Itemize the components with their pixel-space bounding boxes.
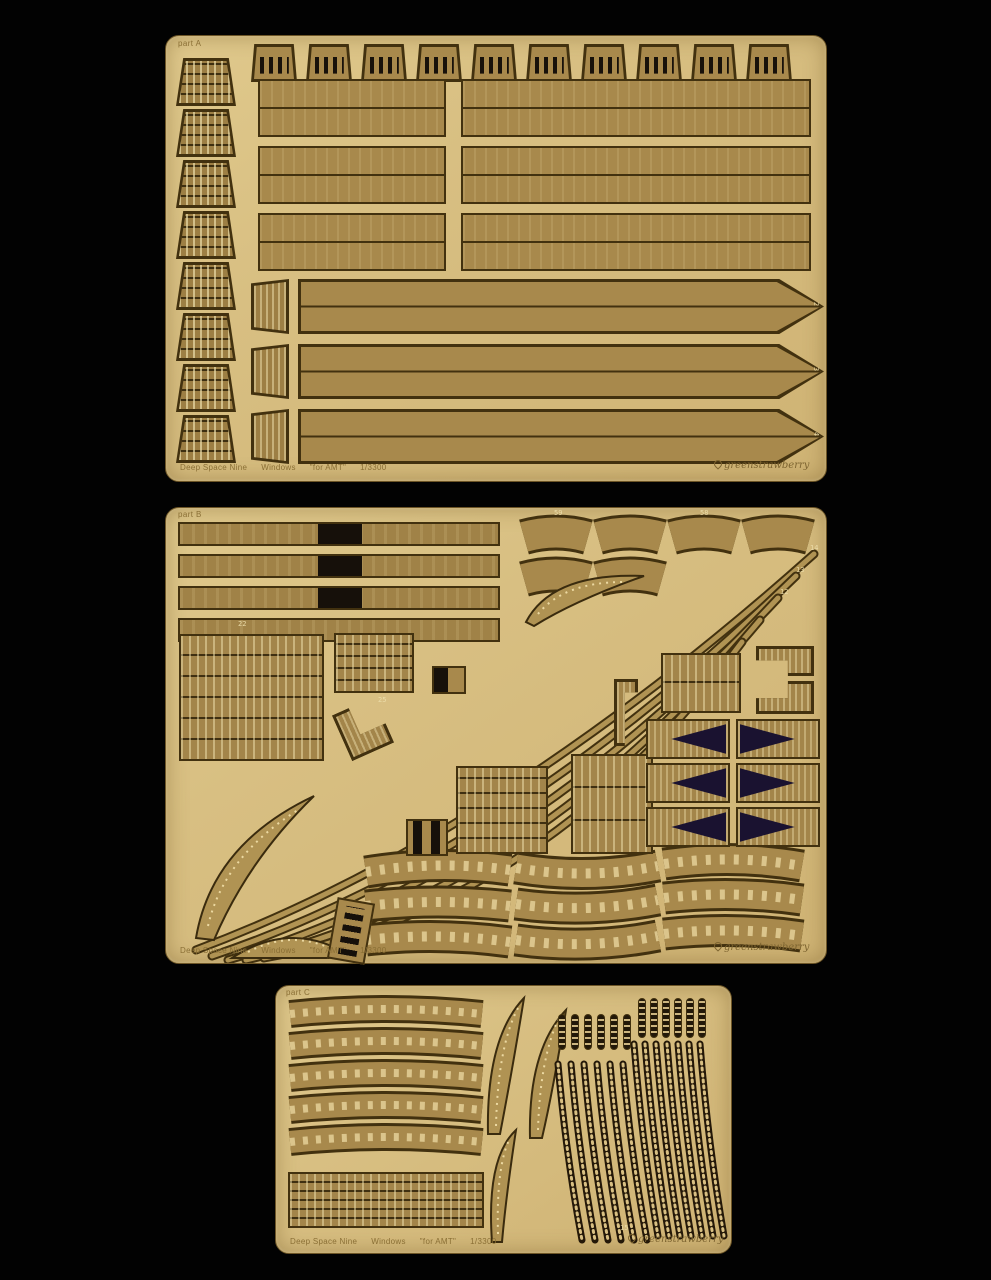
wavy-strip — [366, 902, 510, 906]
fan-strip — [623, 1064, 647, 1240]
part-number-label: 13 — [796, 566, 804, 574]
brand-name: greenstrawberry — [724, 942, 809, 953]
vent-slot-piece — [471, 44, 517, 82]
wavy-windows — [664, 859, 802, 866]
brand-logo: greenstrawberry — [714, 942, 809, 953]
slotted-pad-piece — [406, 819, 448, 856]
capsule-piece — [662, 998, 670, 1038]
capsule-piece — [638, 998, 646, 1038]
bowtie-window-piece — [736, 719, 820, 759]
part-number-label: 59 — [554, 509, 562, 517]
caption-subject: Windows — [261, 946, 296, 955]
fan-strip-rungs — [667, 1044, 691, 1236]
window-trapezoid-piece — [176, 415, 236, 463]
wavy-outline — [516, 936, 658, 944]
sail-piece — [491, 1130, 516, 1242]
hull-bar-pair — [461, 79, 811, 137]
wavy-windows — [516, 936, 658, 944]
arc-strip-windows — [290, 1137, 482, 1142]
fan-strip — [610, 1064, 634, 1240]
vent-slot-piece — [251, 44, 297, 82]
wavy-windows — [664, 894, 802, 900]
part-number-label: 25 — [378, 696, 386, 704]
fan-strip — [700, 1044, 724, 1236]
arc-strip — [290, 1105, 482, 1110]
caption-kit: "for AMT" — [420, 1237, 456, 1246]
curved-piece — [672, 533, 736, 538]
vent-slot-piece — [306, 44, 352, 82]
photoetch-sheet-c: part C — [275, 985, 732, 1254]
fan-strip — [634, 1044, 658, 1236]
curved-piece-outline — [524, 533, 588, 538]
bowtie-window-piece — [646, 807, 730, 847]
fan-strip-rungs — [597, 1064, 621, 1240]
l-bracket-piece — [614, 679, 638, 746]
part-number-label: 14 — [810, 544, 818, 552]
window-panel — [334, 633, 414, 693]
two-cell-piece — [432, 666, 466, 694]
wavy-outline — [516, 900, 658, 908]
vent-slot-piece — [581, 44, 627, 82]
strawberry-icon — [712, 940, 723, 951]
arc-strip-windows — [290, 1073, 482, 1078]
wavy-strip — [516, 900, 658, 908]
keystone-piece — [251, 409, 289, 464]
wavy-outline — [516, 866, 658, 874]
wavy-windows — [366, 865, 510, 872]
window-panel — [571, 754, 653, 854]
arc-strip-windows — [290, 1105, 482, 1110]
sheet-label: part B — [178, 510, 202, 519]
black-attachment-pad — [318, 524, 362, 544]
sheet-caption: Deep Space NineWindows"for AMT"1/3300 — [180, 463, 400, 472]
arc-strip — [290, 1009, 482, 1014]
fan-strip-rungs — [610, 1064, 634, 1240]
hull-bar-pair — [258, 213, 446, 271]
bowtie-window-piece — [736, 763, 820, 803]
wavy-strip — [664, 859, 802, 866]
fan-ladder-strips — [558, 1044, 724, 1240]
caption-kit: "for AMT" — [310, 946, 346, 955]
brand-logo: greenstrawberry — [628, 1234, 723, 1245]
curved-piece-outline — [598, 533, 662, 538]
caption-scale: 1/3300 — [470, 1237, 496, 1246]
window-trapezoid-piece — [176, 313, 236, 361]
fan-strip-rungs — [645, 1044, 669, 1236]
fan-strip — [678, 1044, 702, 1236]
wavy-outline — [664, 859, 802, 866]
window-panel — [456, 766, 548, 854]
caption-title: Deep Space Nine — [180, 463, 247, 472]
curved-piece-outline — [524, 575, 588, 580]
wavy-windows — [516, 900, 658, 908]
curved-window-pieces — [524, 533, 810, 580]
brand-name: greenstrawberry — [724, 460, 809, 471]
part-number-label: 12 — [780, 588, 788, 596]
capsule-piece — [558, 1014, 566, 1050]
fan-strip-rungs — [584, 1064, 608, 1240]
vent-slot-piece — [636, 44, 682, 82]
black-attachment-pad — [318, 556, 362, 576]
caption-title: Deep Space Nine — [180, 946, 247, 955]
brand-name: greenstrawberry — [638, 1234, 723, 1245]
hull-bar-pair — [258, 146, 446, 204]
vent-slot-piece — [691, 44, 737, 82]
curved-piece — [746, 533, 810, 538]
window-panel — [179, 634, 324, 761]
wavy-strip — [664, 894, 802, 900]
sail-etch-line — [538, 1020, 558, 1130]
window-trapezoid-piece — [176, 160, 236, 208]
curved-piece-outline — [598, 575, 662, 580]
arc-strip-outline — [290, 1009, 482, 1014]
caption-scale: 1/3300 — [360, 463, 386, 472]
fan-strip-rungs — [558, 1064, 582, 1240]
caption-title: Deep Space Nine — [290, 1237, 357, 1246]
strawberry-icon — [626, 1232, 637, 1243]
window-trapezoid-piece — [176, 109, 236, 157]
capsule-piece — [686, 998, 694, 1038]
black-attachment-pad — [318, 588, 362, 608]
sheet-caption: Deep Space NineWindows"for AMT"1/3300 — [180, 946, 400, 955]
window-panel — [661, 653, 741, 713]
curved-piece — [598, 533, 662, 538]
wavy-windows — [664, 930, 802, 936]
fan-strip — [571, 1064, 595, 1240]
bowtie-window-piece — [646, 763, 730, 803]
brand-logo: greenstrawberry — [714, 460, 809, 471]
arc-strip — [290, 1041, 482, 1046]
curved-window-strips — [290, 1009, 482, 1142]
fan-strip — [584, 1064, 608, 1240]
arc-strip-windows — [290, 1009, 482, 1014]
fan-strip-rungs — [656, 1044, 680, 1236]
curved-piece — [598, 575, 662, 580]
fan-strip — [597, 1064, 621, 1240]
sheet-caption: Deep Space NineWindows"for AMT"1/3300 — [290, 1237, 510, 1246]
window-trapezoid-piece — [176, 211, 236, 259]
fan-strip-rungs — [689, 1044, 713, 1236]
wavy-window-strips — [366, 859, 802, 944]
caption-subject: Windows — [371, 1237, 406, 1246]
hull-bar-pair — [461, 213, 811, 271]
blade-etch-line — [538, 582, 624, 614]
part-number-label: 3 — [812, 367, 820, 371]
arc-strip-outline — [290, 1137, 482, 1142]
window-panel — [288, 1172, 484, 1228]
capsule-piece — [674, 998, 682, 1038]
curved-piece — [524, 533, 588, 538]
wavy-strip — [366, 865, 510, 872]
curved-piece-outline — [672, 533, 736, 538]
vent-slot-piece — [746, 44, 792, 82]
capsule-piece — [623, 1014, 631, 1050]
arc-strip-outline — [290, 1105, 482, 1110]
sensor-blade-piece — [526, 576, 644, 626]
wavy-outline — [366, 902, 510, 906]
l-bracket-piece — [756, 646, 814, 676]
arrow-strip-pair — [298, 409, 824, 464]
photoetch-product-photo: part A 2 3 4 — [0, 0, 991, 1280]
arc-strip-outline — [290, 1073, 482, 1078]
wavy-strip — [516, 936, 658, 944]
fan-strip-rungs — [700, 1044, 724, 1236]
sheet-label: part C — [286, 988, 310, 997]
sheet-label: part A — [178, 39, 201, 48]
arc-strip — [290, 1073, 482, 1078]
vent-slot-piece — [361, 44, 407, 82]
sail-piece — [488, 998, 524, 1134]
part-number-label: 22 — [238, 620, 246, 628]
hull-bar-pair — [258, 79, 446, 137]
fan-strip-rungs — [571, 1064, 595, 1240]
capsule-piece — [650, 998, 658, 1038]
stepped-bracket-piece — [332, 697, 394, 761]
arrow-strip-pair — [298, 279, 824, 334]
sail-pieces — [488, 998, 566, 1242]
wavy-windows — [366, 902, 510, 906]
arc-strip — [290, 1137, 482, 1142]
curved-piece-outline — [746, 533, 810, 538]
curved-piece — [524, 575, 588, 580]
photoetch-sheet-b: part B — [165, 507, 827, 964]
capsule-piece — [584, 1014, 592, 1050]
keystone-piece — [251, 344, 289, 399]
wavy-strip — [366, 936, 510, 942]
fan-strip — [689, 1044, 713, 1236]
bowtie-window-piece — [736, 807, 820, 847]
wavy-outline — [366, 936, 510, 942]
arc-strip-windows — [290, 1041, 482, 1046]
capsule-piece — [610, 1014, 618, 1050]
part-number-label: 58 — [700, 509, 708, 517]
part-number-label: 4 — [812, 432, 820, 436]
wavy-outline — [664, 930, 802, 936]
keystone-piece — [251, 279, 289, 334]
wavy-windows — [516, 866, 658, 874]
wavy-strip — [664, 930, 802, 936]
window-trapezoid-piece — [176, 262, 236, 310]
hull-bar-pair — [461, 146, 811, 204]
capsule-piece — [698, 998, 706, 1038]
fan-strip — [656, 1044, 680, 1236]
crescent-etch-line — [208, 810, 298, 926]
vent-slot-piece — [416, 44, 462, 82]
caption-subject: Windows — [261, 463, 296, 472]
window-trapezoid-piece — [176, 58, 236, 106]
strawberry-icon — [712, 458, 723, 469]
fan-strip-rungs — [623, 1064, 647, 1240]
sail-etch-line — [498, 1138, 510, 1234]
wavy-outline — [664, 894, 802, 900]
arrow-strip-pair — [298, 344, 824, 399]
crescent-blade-piece — [196, 796, 314, 940]
fan-strip — [645, 1044, 669, 1236]
arc-strip-outline — [290, 1041, 482, 1046]
capsule-piece — [571, 1014, 579, 1050]
caption-kit: "for AMT" — [310, 463, 346, 472]
part-number-label: 2 — [812, 302, 820, 306]
fan-strip-rungs — [634, 1044, 658, 1236]
part-number-label: 15 — [620, 1224, 628, 1232]
fan-strip — [558, 1064, 582, 1240]
fan-strip — [667, 1044, 691, 1236]
photoetch-sheet-a: part A 2 3 4 — [165, 35, 827, 482]
sail-etch-line — [496, 1008, 518, 1126]
capsule-piece — [597, 1014, 605, 1050]
window-trapezoid-piece — [176, 364, 236, 412]
caption-scale: 1/3300 — [360, 946, 386, 955]
fan-strip-rungs — [678, 1044, 702, 1236]
vent-slot-piece — [526, 44, 572, 82]
wavy-strip — [516, 866, 658, 874]
bowtie-window-piece — [646, 719, 730, 759]
l-bracket-piece — [756, 681, 814, 714]
wavy-windows — [366, 936, 510, 942]
wavy-outline — [366, 865, 510, 872]
